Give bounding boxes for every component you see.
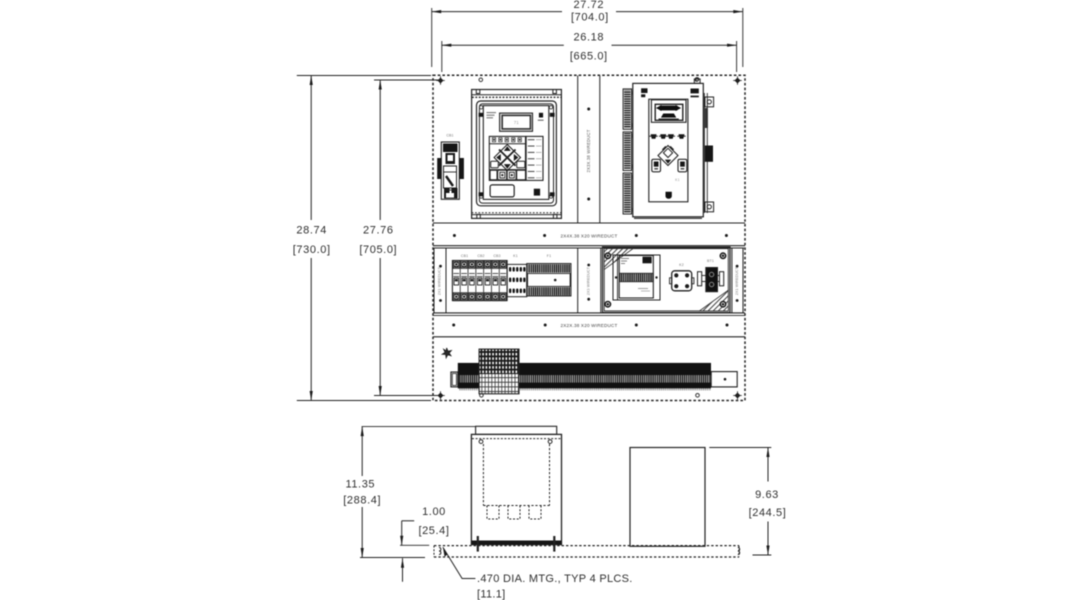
svg-text:BT1: BT1 [707, 259, 714, 263]
svg-text:CB1: CB1 [446, 134, 453, 138]
svg-text:2X1 WIREDUCT: 2X1 WIREDUCT [437, 266, 441, 295]
svg-text:CB1: CB1 [461, 254, 468, 258]
svg-text:K1: K1 [675, 178, 679, 182]
svg-text:1.00: 1.00 [422, 506, 446, 518]
svg-text:[730.0]: [730.0] [293, 244, 331, 256]
svg-text:71: 71 [514, 120, 519, 125]
svg-text:F1: F1 [547, 254, 551, 258]
svg-text:K2: K2 [679, 263, 684, 267]
svg-text:26.18: 26.18 [574, 31, 605, 43]
svg-text:2X3 WIREDUCT: 2X3 WIREDUCT [587, 266, 591, 295]
svg-text:[704.0]: [704.0] [571, 12, 609, 24]
svg-text:[705.0]: [705.0] [359, 244, 397, 256]
svg-text:[25.4]: [25.4] [418, 525, 449, 537]
svg-text:.470 DIA. MTG., TYP 4 PLCS.: .470 DIA. MTG., TYP 4 PLCS. [477, 573, 633, 585]
svg-text:27.76: 27.76 [363, 225, 394, 237]
svg-text:28.74: 28.74 [296, 225, 327, 237]
svg-text:27.72: 27.72 [574, 0, 605, 11]
svg-text:[665.0]: [665.0] [570, 50, 608, 62]
svg-text:[288.4]: [288.4] [343, 494, 381, 506]
svg-text:2X3X.38 WIREDUCT: 2X3X.38 WIREDUCT [586, 129, 591, 172]
svg-text:2X2X.38 X20 WIREDUCT: 2X2X.38 X20 WIREDUCT [560, 323, 617, 328]
svg-text:CB2: CB2 [477, 254, 484, 258]
svg-text:[11.1]: [11.1] [477, 589, 506, 600]
svg-text:2X1 WIREDUCT: 2X1 WIREDUCT [735, 266, 739, 295]
svg-text:9.63: 9.63 [755, 489, 779, 501]
svg-text:11.35: 11.35 [345, 479, 375, 491]
svg-text:CB3: CB3 [493, 254, 500, 258]
svg-text:[244.5]: [244.5] [749, 507, 787, 519]
svg-text:K1: K1 [513, 254, 518, 258]
svg-text:2X4X.38 X20 WIREDUCT: 2X4X.38 X20 WIREDUCT [560, 234, 617, 239]
